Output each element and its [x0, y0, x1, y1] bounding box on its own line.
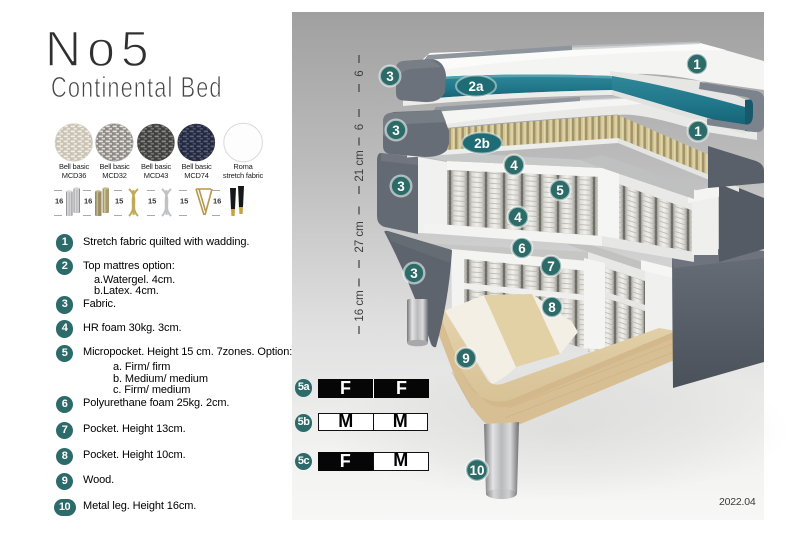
svg-text:16: 16 [84, 197, 92, 206]
svg-text:9: 9 [462, 351, 470, 366]
svg-text:3: 3 [386, 69, 394, 84]
svg-text:16 cm: 16 cm [354, 290, 366, 321]
svg-text:15: 15 [180, 197, 188, 206]
svg-text:7: 7 [547, 259, 555, 274]
svg-text:15: 15 [115, 197, 123, 206]
svg-text:2b: 2b [474, 136, 490, 151]
svg-text:15: 15 [148, 197, 156, 206]
svg-text:16: 16 [213, 197, 221, 206]
svg-text:3: 3 [410, 266, 418, 281]
svg-text:6: 6 [354, 70, 366, 76]
svg-text:6: 6 [354, 124, 366, 130]
svg-text:1: 1 [693, 57, 701, 72]
svg-text:27 cm: 27 cm [354, 221, 366, 252]
svg-text:3: 3 [392, 123, 400, 138]
svg-text:5: 5 [556, 183, 564, 198]
svg-text:21 cm: 21 cm [354, 150, 366, 181]
svg-text:10: 10 [469, 463, 484, 478]
svg-text:16: 16 [55, 197, 63, 206]
svg-text:3: 3 [397, 179, 405, 194]
svg-text:6: 6 [518, 241, 526, 256]
svg-text:8: 8 [548, 300, 556, 315]
svg-text:2a: 2a [468, 79, 484, 94]
svg-text:1: 1 [694, 124, 702, 139]
svg-text:4: 4 [514, 210, 522, 225]
svg-text:4: 4 [510, 158, 518, 173]
